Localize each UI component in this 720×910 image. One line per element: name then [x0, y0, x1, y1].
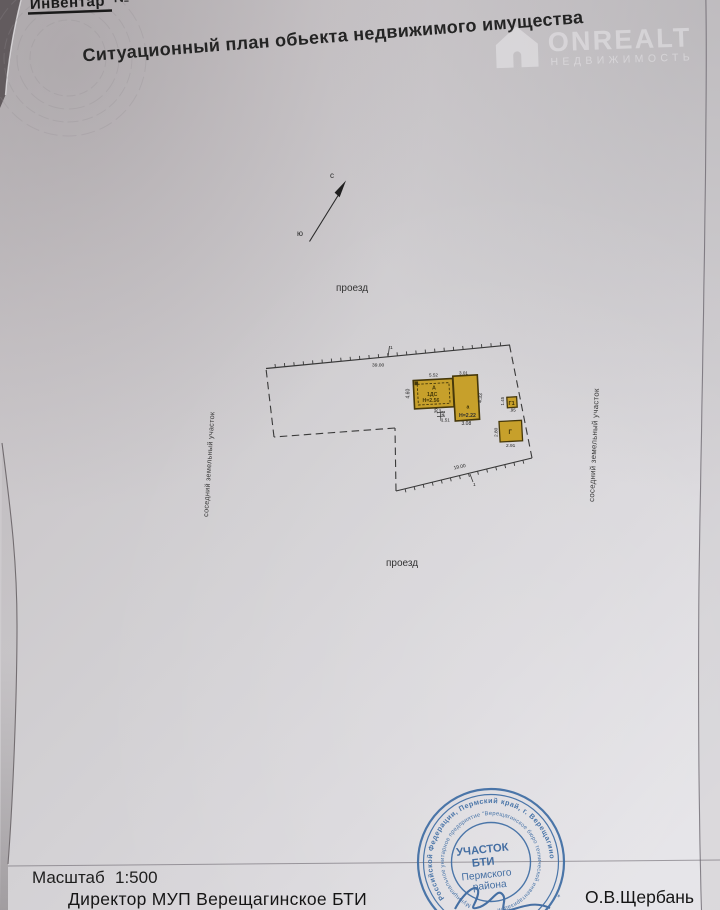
svg-text:1:500: 1:500 — [115, 868, 158, 887]
svg-text:ю: ю — [297, 229, 303, 238]
svg-text:проезд: проезд — [336, 283, 368, 294]
svg-text:1: 1 — [473, 482, 476, 488]
svg-text:с: с — [330, 171, 334, 180]
svg-text:проезд: проезд — [386, 558, 418, 569]
svg-text:.95: .95 — [510, 408, 517, 413]
svg-text:4.60: 4.60 — [406, 389, 412, 399]
svg-text:2.91: 2.91 — [506, 443, 516, 449]
svg-text:Масштаб: Масштаб — [32, 868, 105, 887]
svg-text:1.45: 1.45 — [500, 396, 505, 405]
svg-text:.38: .38 — [434, 408, 439, 415]
svg-text:Н=2.22: Н=2.22 — [459, 413, 476, 419]
svg-text:39.00: 39.00 — [372, 363, 385, 369]
svg-text:1: 1 — [390, 345, 393, 351]
svg-text:4.33: 4.33 — [478, 393, 485, 403]
svg-text:Н=2.56: Н=2.56 — [423, 398, 440, 404]
svg-text:2.80: 2.80 — [494, 427, 500, 437]
svg-text:Г: Г — [509, 430, 513, 436]
svg-text:Директор МУП Верещагинское БТИ: Директор МУП Верещагинское БТИ — [68, 889, 367, 909]
svg-text:А: А — [432, 386, 436, 392]
svg-text:Г1: Г1 — [509, 401, 515, 407]
svg-text:БТИ: БТИ — [471, 856, 495, 870]
svg-text:3.01: 3.01 — [459, 371, 468, 376]
svg-text:а: а — [467, 405, 470, 411]
svg-text:О.В.Щербань: О.В.Щербань — [585, 887, 694, 907]
svg-text:5.52: 5.52 — [429, 373, 438, 378]
svg-text:.42: .42 — [441, 410, 446, 417]
svg-text:№: № — [113, 0, 129, 5]
svg-text:1.51: 1.51 — [441, 418, 450, 423]
svg-text:3.08: 3.08 — [462, 421, 472, 427]
